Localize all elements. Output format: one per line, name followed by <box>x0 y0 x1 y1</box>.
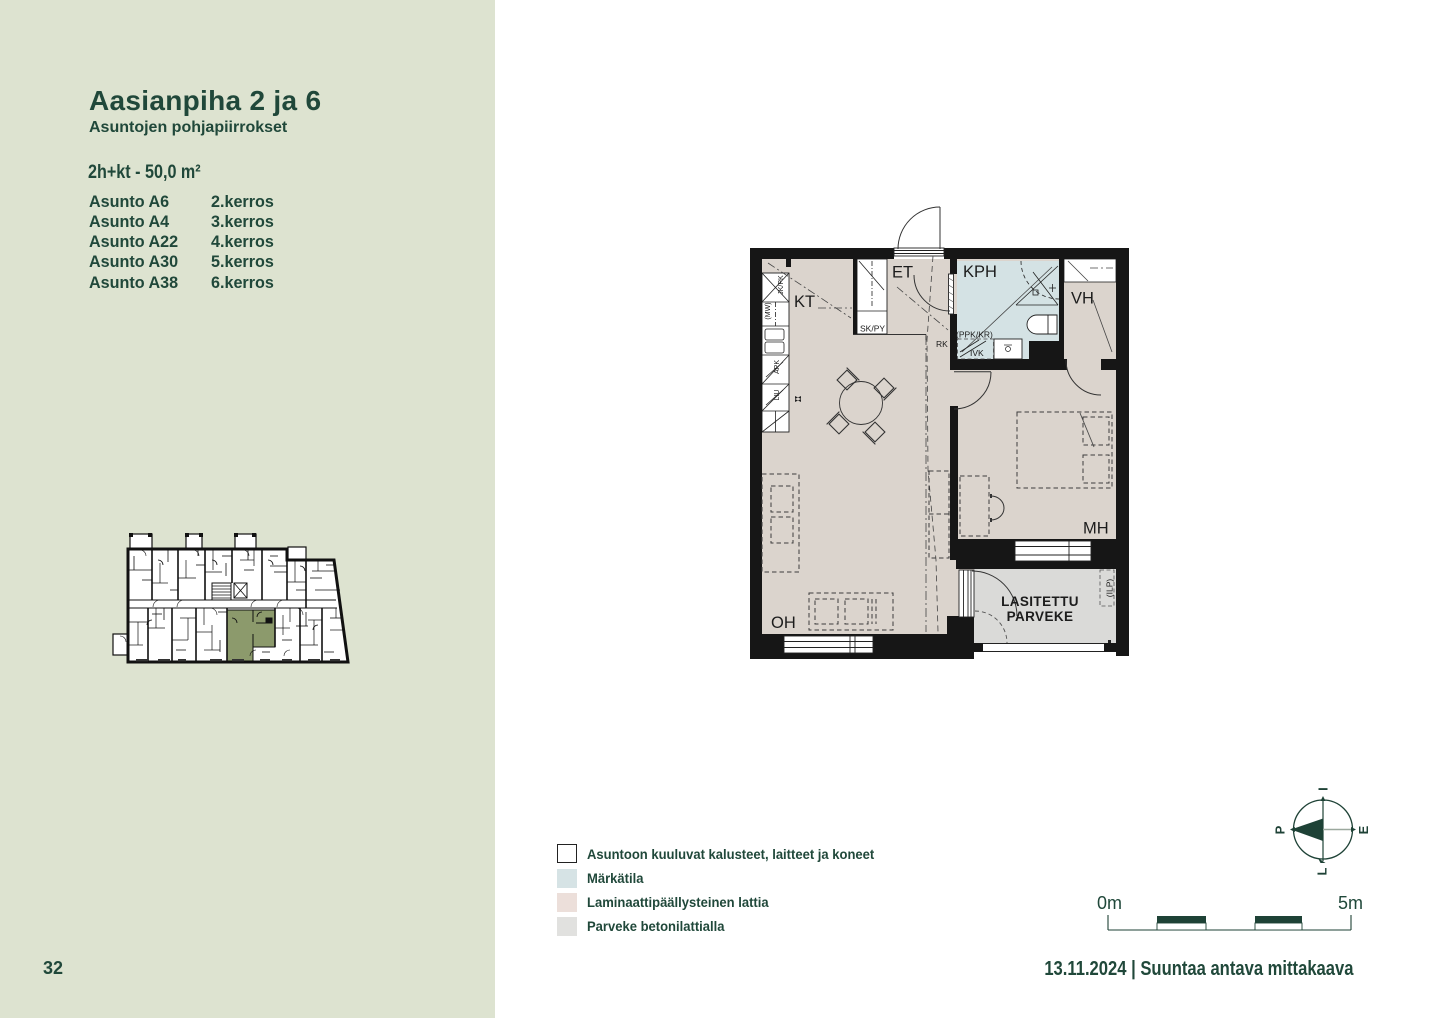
svg-text:VH: VH <box>1071 290 1094 308</box>
svg-text:KT: KT <box>794 293 815 311</box>
svg-text:E: E <box>1356 825 1371 834</box>
svg-text:0m: 0m <box>1097 893 1122 913</box>
svg-text:OH: OH <box>771 614 796 632</box>
svg-text:(PPK/KR): (PPK/KR) <box>956 330 993 340</box>
svg-text:LASITETTU: LASITETTU <box>1001 594 1079 609</box>
svg-text:(MW): (MW) <box>765 302 772 319</box>
svg-text:SK/PY: SK/PY <box>860 324 885 334</box>
svg-text:MH: MH <box>1083 520 1109 538</box>
svg-text:ET: ET <box>892 264 913 282</box>
svg-text:L: L <box>1314 867 1329 875</box>
svg-text:P: P <box>1272 825 1287 834</box>
svg-text:5m: 5m <box>1338 893 1363 913</box>
svg-text:KPH: KPH <box>963 263 997 281</box>
svg-text:LIU: LIU <box>774 390 781 401</box>
svg-text:IVK: IVK <box>970 348 984 358</box>
svg-text:JK/PK: JK/PK <box>778 275 785 295</box>
svg-text:I: I <box>1315 787 1330 791</box>
svg-text:PARVEKE: PARVEKE <box>1007 609 1074 624</box>
svg-text:(ILP): (ILP) <box>1105 579 1115 598</box>
svg-text:RK: RK <box>936 339 948 349</box>
svg-text:APK: APK <box>774 360 781 374</box>
